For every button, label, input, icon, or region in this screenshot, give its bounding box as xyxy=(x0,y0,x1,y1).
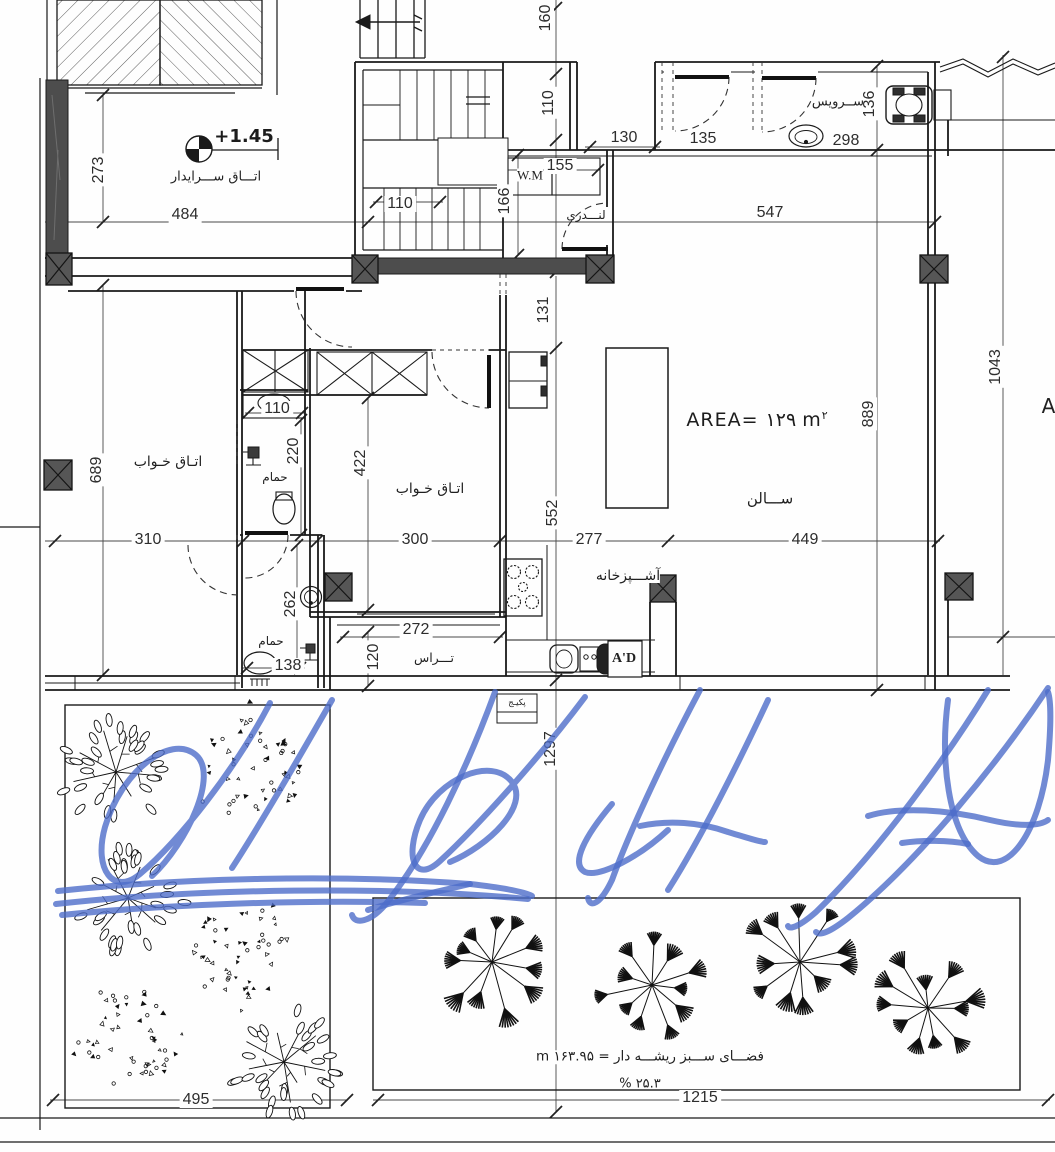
column xyxy=(325,573,352,601)
dim-155: 155 xyxy=(544,158,577,174)
dim-160: 160 xyxy=(538,2,554,35)
dim-889: 889 xyxy=(861,398,877,431)
column xyxy=(46,253,72,285)
tree-fan xyxy=(594,932,706,1040)
room-salon: ســـالن xyxy=(747,492,793,507)
dim-449: 449 xyxy=(789,532,822,548)
room-bedroom-2: اتـاق خـواب xyxy=(396,482,465,496)
green-space-percent: ۲۵.۳ % xyxy=(619,1078,661,1091)
column xyxy=(920,255,948,283)
kitchen-fixtures xyxy=(504,348,668,677)
room-bath-1: حمام xyxy=(262,471,287,483)
dim-552: 552 xyxy=(545,497,561,530)
dim-135: 135 xyxy=(687,131,720,147)
dim-422: 422 xyxy=(353,447,369,480)
dim-120: 120 xyxy=(366,641,382,674)
tree-fan xyxy=(875,951,986,1054)
room-bath-2: حمام xyxy=(258,635,283,647)
dim-138: 138 xyxy=(272,658,305,674)
room-terrace: تـــراس xyxy=(414,652,454,665)
dim-273: 273 xyxy=(91,154,107,187)
tree-branch xyxy=(56,713,168,822)
dim-110-bath: 110 xyxy=(261,401,293,417)
staircase xyxy=(356,0,508,250)
tree-fan xyxy=(444,916,543,1028)
tree-fan xyxy=(746,903,858,1015)
dim-110-shaft: 110 xyxy=(541,87,557,119)
partial-area-letter: A xyxy=(1042,396,1055,416)
dim-262: 262 xyxy=(283,588,299,621)
trees xyxy=(56,699,985,1120)
tree-scatter xyxy=(71,990,183,1085)
room-janitor: اتـــاق ســـرایدار xyxy=(171,171,261,184)
dim-166: 166 xyxy=(497,185,513,218)
dim-110-stair: 110 xyxy=(384,196,416,212)
dim-131: 131 xyxy=(536,294,552,327)
closets xyxy=(243,350,427,395)
dim-277: 277 xyxy=(573,532,606,548)
room-laundry: لنـــدری xyxy=(566,209,605,221)
dim-689: 689 xyxy=(89,454,105,487)
tree-scatter xyxy=(201,699,303,814)
column xyxy=(586,255,614,283)
dim-484: 484 xyxy=(169,207,202,223)
level-value: +1.45 xyxy=(214,128,274,146)
room-kitchen: آشـــپزخانه xyxy=(596,569,660,583)
site-lines xyxy=(0,78,1055,1142)
room-bedroom-1: اتـاق خـواب xyxy=(134,455,203,469)
floorplan-sheet: 273 484 160 110 130 135 298 136 547 155 … xyxy=(0,0,1055,1152)
dim-130: 130 xyxy=(608,130,641,146)
dim-220: 220 xyxy=(286,435,302,468)
tree-branch xyxy=(227,1003,344,1120)
dim-1043: 1043 xyxy=(988,346,1004,388)
dim-136: 136 xyxy=(862,88,878,121)
column xyxy=(945,573,973,600)
dim-300: 300 xyxy=(399,532,432,548)
dim-1215: 1215 xyxy=(679,1090,721,1106)
dim-272: 272 xyxy=(400,622,433,638)
boiler-label: پکیـج xyxy=(508,699,526,708)
tree-scatter xyxy=(192,903,289,1012)
dim-310: 310 xyxy=(132,532,165,548)
dim-298: 298 xyxy=(830,133,863,149)
dim-1297: 1297 xyxy=(543,728,559,770)
room-service: ســرویس xyxy=(812,96,864,109)
column xyxy=(352,255,378,283)
columns xyxy=(44,253,973,602)
dim-547: 547 xyxy=(754,205,787,221)
area-annotation: AREA= ۱۲۹ m٢ xyxy=(686,410,827,430)
tree-branch xyxy=(74,842,191,957)
column xyxy=(44,460,72,490)
wm-label: W.M xyxy=(517,169,543,182)
green-space-annotation: فضـــای ســـبز ریشـــه دار = ۱۶۳.۹۵ m xyxy=(536,1050,764,1064)
sink-brand-label: A'D xyxy=(612,652,636,666)
dim-495: 495 xyxy=(180,1092,213,1108)
hatched-canopy xyxy=(47,0,277,95)
